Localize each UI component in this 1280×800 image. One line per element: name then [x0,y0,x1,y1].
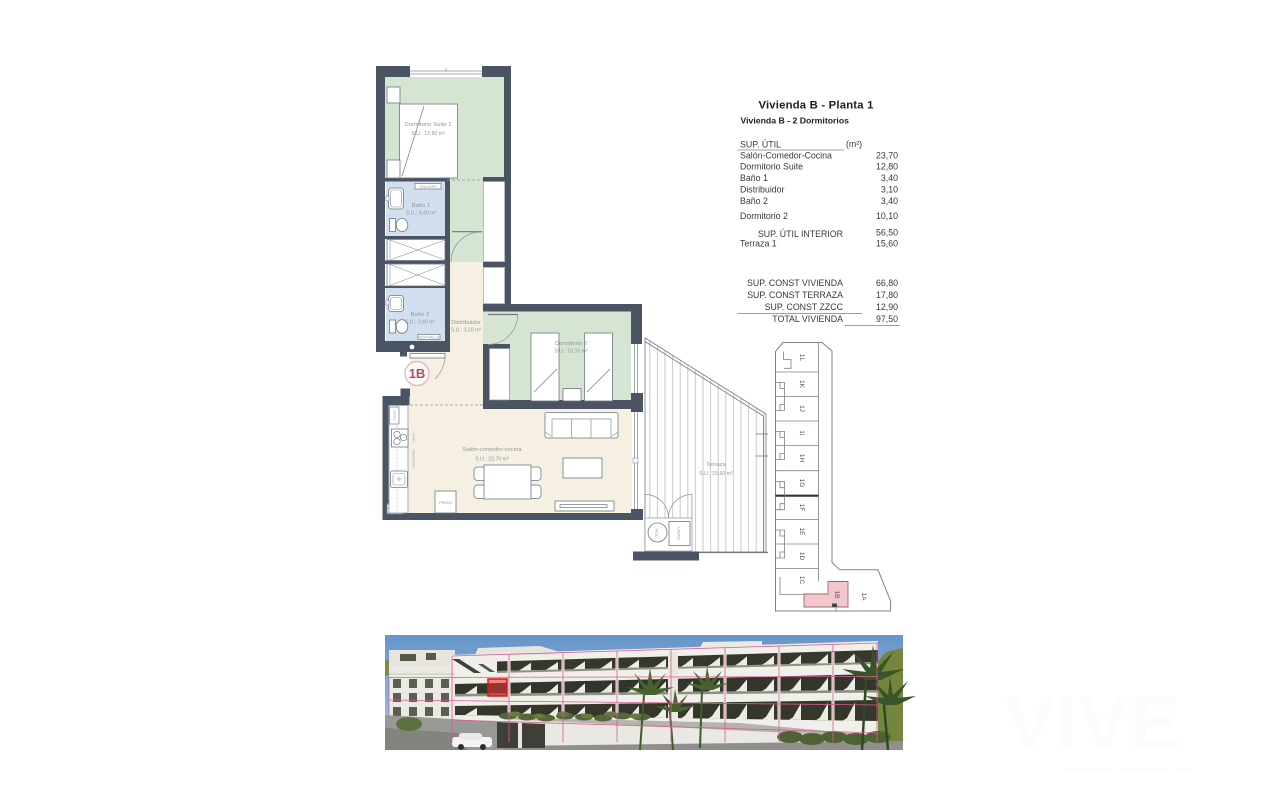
svg-text:Baño 2: Baño 2 [740,196,768,206]
svg-text:Dormitorio Suite: Dormitorio Suite [740,162,803,172]
svg-text:3,40: 3,40 [881,173,898,183]
svg-text:12,90: 12,90 [876,302,898,312]
svg-text:12,80: 12,80 [876,162,898,172]
svg-text:VIVE: VIVE [1005,681,1182,764]
svg-text:Dormitorio 2: Dormitorio 2 [740,211,788,221]
svg-text:MICRO: MICRO [393,411,397,422]
svg-text:Distribuidor: Distribuidor [740,185,785,195]
svg-text:SUP. ÚTIL INTERIOR: SUP. ÚTIL INTERIOR [758,229,843,239]
svg-text:Terraza: Terraza [706,462,726,468]
svg-text:SUP. CONST ZZCC: SUP. CONST ZZCC [765,302,844,312]
svg-text:S.U.: 15,60 m²: S.U.: 15,60 m² [699,471,733,477]
svg-text:1H: 1H [798,454,805,463]
svg-text:S.U.: 23,70 m²: S.U.: 23,70 m² [475,457,509,463]
svg-text:1D: 1D [798,552,805,561]
svg-text:LAVAD: LAVAD [677,527,682,540]
svg-text:10,10: 10,10 [876,211,898,221]
svg-text:S.U.: 3,40 m²: S.U.: 3,40 m² [405,320,436,326]
svg-text:FREGADERO: FREGADERO [412,449,416,469]
svg-text:Salón-comedor-cocina: Salón-comedor-cocina [463,447,523,453]
svg-text:Dormitorio Suite 1: Dormitorio Suite 1 [404,122,451,128]
svg-text:SUP. CONST TERRAZA: SUP. CONST TERRAZA [747,290,843,300]
svg-text:1B: 1B [409,366,426,381]
svg-text:Baño 1: Baño 1 [740,173,768,183]
svg-text:S.U.: 10,10 m²: S.U.: 10,10 m² [554,349,588,355]
svg-text:SUP. ÚTIL: SUP. ÚTIL [740,140,781,150]
svg-text:FRIGO: FRIGO [439,500,452,505]
svg-text:Vivienda B - 2 Dormitorios: Vivienda B - 2 Dormitorios [741,116,850,126]
svg-text:66,80: 66,80 [876,278,898,288]
svg-text:S.U.: 3,10 m²: S.U.: 3,10 m² [451,328,482,334]
svg-text:SUP. CONST VIVIENDA: SUP. CONST VIVIENDA [747,278,843,288]
svg-text:1B: 1B [833,591,840,599]
svg-text:15,60: 15,60 [876,239,898,249]
svg-text:Baño 2: Baño 2 [411,312,430,318]
svg-text:1G: 1G [798,479,805,488]
svg-text:1E: 1E [798,528,805,537]
svg-text:Dormitorio 2: Dormitorio 2 [555,341,587,347]
svg-text:17,80: 17,80 [876,290,898,300]
svg-text:23,70: 23,70 [876,151,898,161]
svg-text:1K: 1K [798,380,805,389]
svg-text:ACS: ACS [655,528,660,537]
svg-text:Terraza 1: Terraza 1 [740,239,777,249]
svg-text:1L: 1L [798,354,805,362]
svg-text:1F: 1F [798,504,805,512]
svg-text:S.U.: 12,80 m²: S.U.: 12,80 m² [411,131,445,137]
svg-text:1J: 1J [798,405,805,412]
svg-text:(m²): (m²) [846,139,862,149]
svg-text:Salón-Comedor-Cocina: Salón-Comedor-Cocina [740,151,832,161]
svg-text:VITRO: VITRO [412,433,416,443]
svg-text:TOALLERO: TOALLERO [420,185,437,189]
svg-text:Baño 1: Baño 1 [412,203,431,209]
svg-text:1A: 1A [860,593,867,602]
svg-text:56,50: 56,50 [876,228,898,238]
svg-text:Vivienda B - Planta 1: Vivienda B - Planta 1 [758,100,873,112]
svg-text:3,10: 3,10 [881,185,898,195]
svg-text:Distribuidor: Distribuidor [451,320,481,326]
svg-text:SECATOALLAS: SECATOALLAS [418,336,441,340]
svg-text:1C: 1C [798,576,805,585]
svg-text:S.U.: 3,40 m²: S.U.: 3,40 m² [406,211,437,217]
svg-text:3,40: 3,40 [881,196,898,206]
svg-text:97,50: 97,50 [876,314,898,324]
svg-text:TOTAL VIVIENDA: TOTAL VIVIENDA [772,314,843,324]
svg-text:1I: 1I [798,430,805,436]
